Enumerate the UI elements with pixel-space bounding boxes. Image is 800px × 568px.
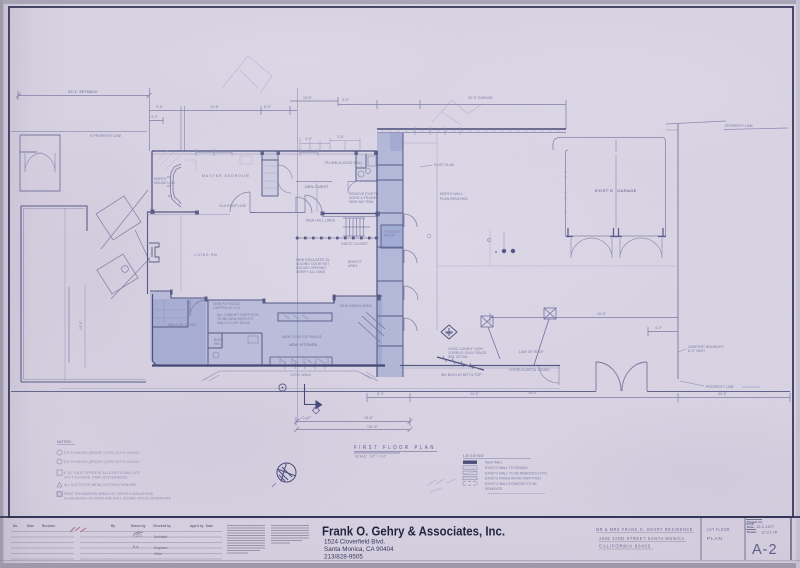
svg-text:213/828-9505: 213/828-9505 — [324, 554, 363, 561]
svg-text:4'-0": 4'-0" — [305, 137, 313, 141]
svg-text:39'-6": 39'-6" — [718, 392, 728, 396]
svg-text:LINE OF ROOF: LINE OF ROOF — [519, 350, 544, 354]
svg-text:F.O.G.: F.O.G. — [133, 534, 143, 538]
svg-text:A-2: A-2 — [752, 542, 778, 558]
svg-text:9'-6": 9'-6" — [156, 105, 164, 109]
svg-text:PLAN: PLAN — [707, 536, 723, 542]
svg-text:14'-6": 14'-6" — [210, 105, 220, 109]
svg-text:MR & MRS FRANK O. GEHRY RES: MR & MRS FRANK O. GEHRY RESIDENCE — [596, 527, 693, 532]
svg-text:REMOVED: REMOVED — [485, 487, 503, 491]
svg-text:RM 2: RM 2 — [214, 342, 222, 346]
svg-text:D E PLYWOOD (GROUP 2) NTD: D E PLYWOOD (GROUP 2) NTD 24 F 6"x 6 BOL… — [64, 451, 140, 455]
svg-text:14'-0": 14'-0" — [79, 320, 83, 330]
svg-text:GUEST CLOSET: GUEST CLOSET — [341, 242, 369, 246]
svg-text:24 F F 5.0 GAGE. STAIN SYST: 24 F F 5.0 GAGE. STAIN SYSTEM BOND — [64, 476, 128, 480]
svg-text:PROPERTY LINE: PROPERTY LINE — [706, 385, 735, 389]
svg-text:2'-6": 2'-6" — [337, 135, 345, 139]
svg-text:6'-0" HIGH: 6'-0" HIGH — [688, 349, 705, 353]
svg-text:PLAN REMOVED: PLAN REMOVED — [440, 197, 468, 201]
svg-text:NEW HALL LINEN: NEW HALL LINEN — [306, 219, 336, 223]
svg-text:HOUSE LINE: HOUSE LINE — [154, 181, 176, 185]
svg-text:D E PLYWOOD (GROUP 2) NTD: D E PLYWOOD (GROUP 2) NTD 24 F 6"x 6 BOL… — [64, 460, 140, 464]
svg-text:Santa Monica, CA 90404: Santa Monica, CA 90404 — [324, 546, 394, 553]
svg-text:1ST FLOOR: 1ST FLOOR — [707, 527, 730, 533]
svg-text:OLD ROOF LINE: OLD ROOF LINE — [219, 204, 247, 208]
svg-text:Revision: Revision — [42, 524, 55, 528]
svg-text:ALL DUCTS EXP METAL DUCTING: ALL DUCTS EXP METAL DUCTING PLENUMS — [64, 483, 137, 487]
svg-text:NEW WALL: NEW WALL — [485, 461, 503, 465]
svg-text:101'-6": 101'-6" — [367, 425, 379, 429]
svg-text:PROPERTY LINE: PROPERTY LINE — [725, 124, 754, 128]
svg-text:12-1-1977: 12-1-1977 — [756, 524, 775, 529]
svg-text:18'-6": 18'-6" — [364, 416, 374, 420]
svg-text:Engineer: Engineer — [154, 546, 168, 550]
svg-text:15'-6": 15'-6" — [303, 96, 313, 100]
svg-text:Date:: Date: — [747, 525, 755, 529]
svg-text:4'-0": 4'-0" — [151, 115, 159, 119]
svg-text:MASTER BEDROOM: MASTER BEDROOM — [202, 174, 250, 178]
svg-text:EXIST'G FINISH WOOD PARTITI: EXIST'G FINISH WOOD PARTITION — [485, 477, 541, 481]
svg-text:Drawn:: Drawn: — [747, 530, 757, 534]
svg-text:40'-6": 40'-6" — [597, 312, 607, 316]
svg-text:Other: Other — [154, 552, 163, 556]
svg-text:SCALE : 1/4" = 1'-0": SCALE : 1/4" = 1'-0" — [355, 455, 387, 459]
svg-text:NEW KITCHEN: NEW KITCHEN — [289, 342, 317, 347]
svg-text:Date: Date — [27, 524, 34, 528]
svg-text:PLUMB ACCESS WALL: PLUMB ACCESS WALL — [325, 161, 363, 165]
svg-text:12-21-78: 12-21-78 — [761, 530, 778, 535]
svg-text:EXIST SLAB: EXIST SLAB — [434, 163, 455, 167]
svg-text:Frank O. Gehry & Associates, I: Frank O. Gehry & Associates, Inc. — [322, 524, 505, 539]
svg-text:5'-0": 5'-0" — [342, 98, 350, 102]
svg-text:E 1/2" GA AT OFFICE AT ALL: E 1/2" GA AT OFFICE AT ALL EXIST'G WALL … — [64, 471, 141, 475]
svg-text:LEGEND: LEGEND — [463, 453, 484, 458]
svg-text:CAPPED AT CLG: CAPPED AT CLG — [213, 306, 241, 310]
svg-text:NEW WD TRIM: NEW WD TRIM — [349, 200, 374, 204]
svg-text:WALK-IN CLOSET: WALK-IN CLOSET — [168, 323, 198, 327]
svg-text:LIVING RM: LIVING RM — [194, 253, 217, 257]
svg-text:1006 22ND STREET SANTA M: 1006 22ND STREET SANTA MONICA — [599, 536, 685, 541]
svg-text:WD BLKG AT BOT & TOP: WD BLKG AT BOT & TOP — [441, 373, 482, 377]
svg-text:Checked by: Checked by — [153, 524, 171, 528]
svg-text:25'-0" GARAGE: 25'-0" GARAGE — [468, 96, 494, 100]
svg-text:1524 Cloverfield Blvd.: 1524 Cloverfield Blvd. — [324, 539, 386, 546]
svg-text:18'-0": 18'-0" — [528, 391, 538, 395]
svg-text:4'-0": 4'-0" — [655, 326, 663, 330]
svg-text:PAINT DISHWASHER ARMLG AT: PAINT DISHWASHER ARMLG AT LIGHTS+LAMINAT… — [64, 492, 154, 496]
svg-text:24'-6": 24'-6" — [470, 392, 480, 396]
svg-text:8'-0": 8'-0" — [264, 105, 272, 109]
svg-text:33'-1" SETBACK: 33'-1" SETBACK — [68, 89, 98, 94]
svg-text:SEE DETAIL: SEE DETAIL — [448, 355, 468, 359]
svg-text:E PROPERTY LINE: E PROPERTY LINE — [90, 134, 122, 138]
svg-text:FIRST FLOOR PLAN: FIRST FLOOR PLAN — [354, 445, 436, 451]
svg-text:ROOM: ROOM — [384, 234, 395, 238]
svg-text:No.: No. — [13, 524, 18, 528]
svg-text:VERIFY ALL DIMS: VERIFY ALL DIMS — [296, 270, 326, 274]
svg-text:NOTES:: NOTES: — [57, 439, 72, 444]
svg-text:EXIST'G WALLS PAINTED TO BE: EXIST'G WALLS PAINTED TO BE — [485, 482, 538, 486]
svg-text:AS BALANCED BY CORR AND SP: AS BALANCED BY CORR AND SPILL DOORS. STO… — [64, 497, 172, 501]
svg-text:EXIST'G WALL TO BE REMOVED (T: EXIST'G WALL TO BE REMOVED (TYP) — [485, 471, 547, 475]
svg-text:EXIST'G WALL TO REMAIN: EXIST'G WALL TO REMAIN — [485, 466, 528, 470]
svg-text:8'-0": 8'-0" — [377, 392, 385, 396]
svg-text:CONC WALK: CONC WALK — [290, 373, 312, 377]
svg-text:NORTH WALL: NORTH WALL — [440, 192, 463, 196]
svg-text:NEW COOKTOP RANGE: NEW COOKTOP RANGE — [282, 335, 323, 339]
svg-text:WALL FLUSH SOLID: WALL FLUSH SOLID — [217, 321, 251, 325]
svg-text:CORRUG METAL SIDING: CORRUG METAL SIDING — [509, 368, 550, 372]
svg-text:Drawn by: Drawn by — [131, 524, 146, 528]
svg-text:AREA: AREA — [348, 264, 358, 268]
svg-text:Architect: Architect — [154, 535, 167, 539]
svg-text:By: By — [111, 524, 115, 528]
svg-text:NEW DINING AREA: NEW DINING AREA — [340, 304, 372, 308]
svg-text:CALIFORNIA 90403: CALIFORNIA 90403 — [599, 544, 651, 549]
svg-text:App'd by: App'd by — [190, 524, 204, 528]
svg-text:B.A.: B.A. — [133, 545, 139, 549]
svg-text:Date: Date — [206, 524, 213, 528]
